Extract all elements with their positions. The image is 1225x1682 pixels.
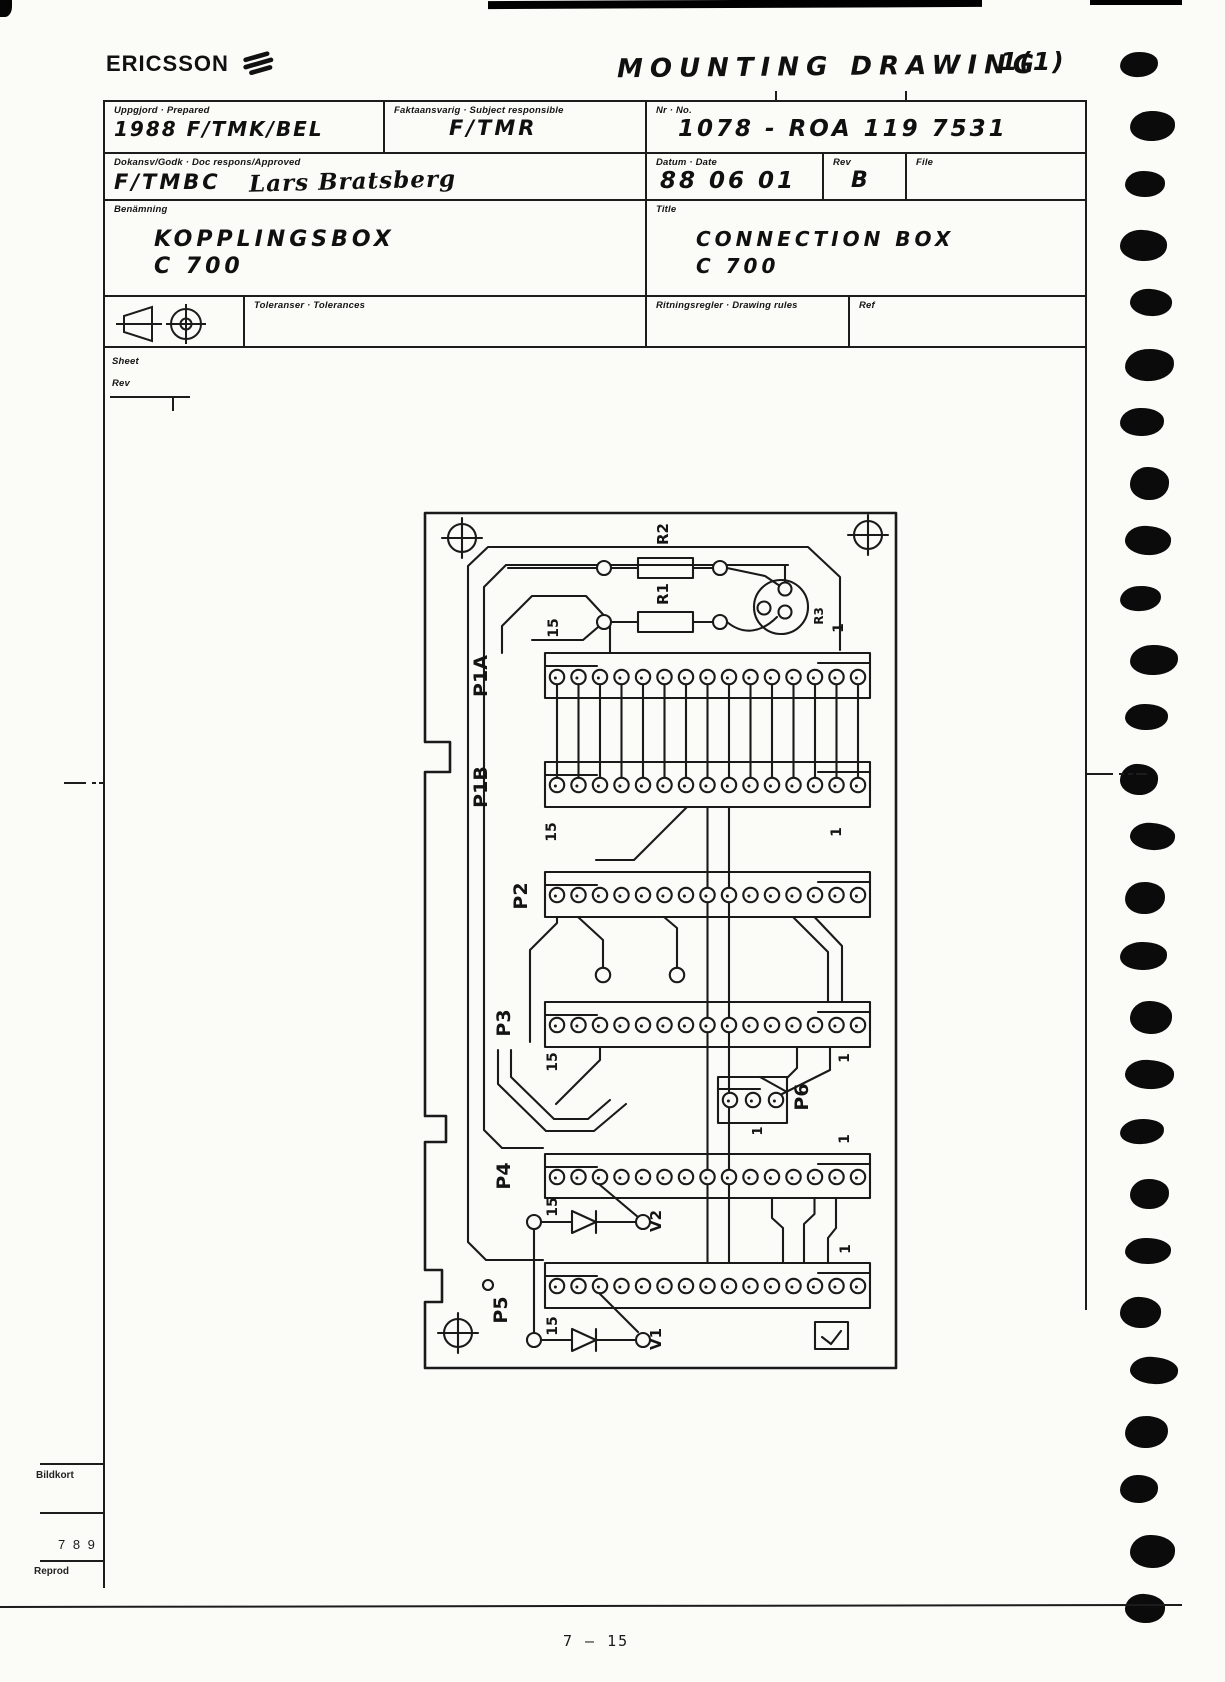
pin1-p5: 1 bbox=[838, 1244, 854, 1254]
pad-drill-mark bbox=[855, 677, 858, 680]
pad-p1b bbox=[571, 778, 585, 792]
pad-p3 bbox=[743, 1018, 757, 1032]
pad-drill-mark bbox=[704, 785, 707, 788]
pad-p1a bbox=[808, 670, 822, 684]
pad-drill-mark bbox=[855, 895, 858, 898]
pad-p3 bbox=[571, 1018, 585, 1032]
pad-drill-mark bbox=[812, 1025, 815, 1028]
pad-p2 bbox=[614, 888, 628, 902]
binder-hole-mark bbox=[1119, 51, 1159, 79]
pin15-p4: 15 bbox=[545, 1197, 561, 1216]
field-designation-line2: C 700 bbox=[154, 254, 645, 279]
rev-row-tick bbox=[172, 396, 174, 411]
footer-rule bbox=[0, 1604, 1182, 1608]
pad-p1a bbox=[743, 670, 757, 684]
pin15-p3: 15 bbox=[545, 1052, 561, 1071]
pad-drill-mark bbox=[640, 1286, 643, 1289]
pad-p4 bbox=[829, 1170, 843, 1184]
doc-no-tick-2 bbox=[905, 91, 907, 100]
resistor-r2 bbox=[597, 558, 727, 578]
component-r3 bbox=[754, 580, 808, 634]
binder-hole-mark bbox=[1130, 1000, 1173, 1034]
binder-hole-mark bbox=[1129, 821, 1176, 851]
pad-drill-mark bbox=[833, 895, 836, 898]
projection-symbol-icon bbox=[114, 300, 242, 346]
field-rev: Rev B bbox=[822, 152, 905, 199]
binder-hole-mark bbox=[1130, 1534, 1176, 1568]
pad-drill-mark bbox=[704, 895, 707, 898]
pad-drill-mark bbox=[683, 1025, 686, 1028]
pad-p2 bbox=[657, 888, 671, 902]
pad-p1a bbox=[700, 670, 714, 684]
pad-p3 bbox=[808, 1018, 822, 1032]
bildkort-box-top bbox=[40, 1463, 103, 1465]
field-projection-symbol bbox=[103, 295, 243, 348]
pad-p5 bbox=[614, 1279, 628, 1293]
pin1-p2: 1 bbox=[829, 827, 845, 837]
margin-number: 7 8 9 bbox=[58, 1537, 97, 1552]
pad-p6 bbox=[746, 1093, 760, 1107]
doc-no-tick-1 bbox=[775, 91, 777, 100]
pad-p6 bbox=[723, 1093, 737, 1107]
frame-right-border bbox=[1085, 100, 1087, 1310]
field-approved-signature: Lars Bratsberg bbox=[248, 165, 456, 197]
pad-p1b bbox=[765, 778, 779, 792]
pad-drill-mark bbox=[661, 677, 664, 680]
pad-drill-mark bbox=[704, 1177, 707, 1180]
pad-p1a bbox=[722, 670, 736, 684]
pad-p5 bbox=[679, 1279, 693, 1293]
pad-drill-mark bbox=[554, 785, 557, 788]
pad-p3 bbox=[722, 1018, 736, 1032]
label-p3: P3 bbox=[493, 1009, 515, 1036]
pad-drill-mark bbox=[640, 1177, 643, 1180]
rev-row-label: Rev bbox=[112, 378, 130, 389]
pad-p1b bbox=[722, 778, 736, 792]
pad-p1b bbox=[636, 778, 650, 792]
pad-p4 bbox=[614, 1170, 628, 1184]
pad-p5 bbox=[550, 1279, 564, 1293]
pin15-p2: 15 bbox=[544, 822, 560, 841]
pad-p2 bbox=[829, 888, 843, 902]
pad-drill-mark bbox=[661, 785, 664, 788]
pad-p4 bbox=[679, 1170, 693, 1184]
pin1-p4: 1 bbox=[837, 1134, 853, 1144]
scanned-drawing-page: ERICSSON MOUNTING DRAWING 1(1) Uppgjord … bbox=[0, 0, 1225, 1682]
pad-p5 bbox=[851, 1279, 865, 1293]
pad-drill-mark bbox=[640, 677, 643, 680]
field-date-label: Datum · Date bbox=[656, 157, 822, 168]
pad-p1a bbox=[636, 670, 650, 684]
binder-hole-mark bbox=[1124, 1415, 1169, 1449]
field-prepared-value: 1988 F/TMK/BEL bbox=[114, 117, 383, 141]
pad-p2 bbox=[743, 888, 757, 902]
trace-verticals bbox=[708, 807, 730, 1263]
label-v1: V1 bbox=[647, 1328, 665, 1350]
pad-p2 bbox=[851, 888, 865, 902]
pad-drill-mark bbox=[769, 895, 772, 898]
pin1-p3: 1 bbox=[837, 1053, 853, 1063]
pad-drill-mark bbox=[812, 895, 815, 898]
field-prepared-label: Uppgjord · Prepared bbox=[114, 105, 383, 116]
pad-drill-mark bbox=[597, 1177, 600, 1180]
pad-drill-mark bbox=[726, 1177, 729, 1180]
binder-hole-mark bbox=[1124, 525, 1171, 556]
pad-drill-mark bbox=[833, 1286, 836, 1289]
centerline-dot-left-2 bbox=[99, 782, 103, 784]
field-drawing-rules-label: Ritningsregler · Drawing rules bbox=[656, 300, 848, 311]
pad-drill-mark bbox=[750, 1100, 753, 1103]
trace-chevrons bbox=[498, 1050, 626, 1131]
field-doc-no-value: 1078 - ROA 119 7531 bbox=[678, 116, 1085, 142]
pad-drill-mark bbox=[812, 1286, 815, 1289]
centerline-dot-right-1 bbox=[1119, 773, 1124, 775]
pad-drill-mark bbox=[790, 1286, 793, 1289]
sheet-count: 1(1) bbox=[1000, 47, 1066, 76]
pad-drill-mark bbox=[683, 1286, 686, 1289]
binder-hole-mark bbox=[1119, 229, 1167, 262]
component-square bbox=[815, 1322, 848, 1349]
pad-drill-mark bbox=[554, 1177, 557, 1180]
pad-drill-mark bbox=[790, 895, 793, 898]
label-r1: R1 bbox=[654, 583, 672, 605]
field-doc-no: Nr · No. 1078 - ROA 119 7531 bbox=[645, 100, 1085, 152]
binder-hole-mark bbox=[1129, 288, 1173, 318]
pad-p4 bbox=[550, 1170, 564, 1184]
binder-hole-mark bbox=[1130, 467, 1170, 501]
field-rev-value: B bbox=[851, 168, 905, 193]
pad-drill-mark bbox=[747, 1177, 750, 1180]
field-title-line2: C 700 bbox=[696, 254, 1085, 278]
pad-drill-mark bbox=[640, 785, 643, 788]
binder-hole-mark bbox=[1129, 1178, 1169, 1209]
ericsson-bars-icon bbox=[239, 50, 279, 78]
pad-p1b bbox=[743, 778, 757, 792]
field-prepared: Uppgjord · Prepared 1988 F/TMK/BEL bbox=[103, 100, 383, 152]
mounting-hole-bottom-left bbox=[438, 1313, 478, 1353]
pad-p4 bbox=[657, 1170, 671, 1184]
pad-p1a bbox=[786, 670, 800, 684]
pad-drill-mark bbox=[833, 785, 836, 788]
binder-hole-mark bbox=[1120, 407, 1164, 436]
field-rev-label: Rev bbox=[833, 157, 905, 168]
pad-p4 bbox=[786, 1170, 800, 1184]
field-ref-label: Ref bbox=[859, 300, 1085, 311]
pad-drill-mark bbox=[833, 1177, 836, 1180]
centerline-mark-left bbox=[64, 782, 86, 784]
field-subject-value: F/TMR bbox=[449, 116, 645, 140]
pad-drill-mark bbox=[554, 1286, 557, 1289]
page-number: 7 – 15 bbox=[563, 1632, 629, 1650]
pad-p4 bbox=[851, 1170, 865, 1184]
field-designation-line1: KOPPLINGSBOX bbox=[154, 227, 645, 252]
pad-drill-mark bbox=[727, 1100, 730, 1103]
reprod-label: Reprod bbox=[34, 1566, 69, 1577]
pad-drill-mark bbox=[833, 1025, 836, 1028]
pad-p2 bbox=[550, 888, 564, 902]
binder-hole-mark bbox=[1119, 1297, 1161, 1329]
pad-p1a bbox=[829, 670, 843, 684]
pad-drill-mark bbox=[726, 1025, 729, 1028]
scan-artifact-top-left bbox=[0, 0, 12, 17]
reprod-box-top bbox=[40, 1560, 103, 1562]
label-p1b: P1B bbox=[470, 766, 492, 808]
pin15-p5: 15 bbox=[545, 1316, 561, 1335]
binder-hole-mark bbox=[1120, 1475, 1158, 1504]
pad-drill-mark bbox=[554, 677, 557, 680]
pad-drill-mark bbox=[769, 785, 772, 788]
pad-drill-mark bbox=[790, 677, 793, 680]
binder-hole-mark bbox=[1124, 347, 1175, 382]
pad-p4 bbox=[808, 1170, 822, 1184]
pad-p3 bbox=[829, 1018, 843, 1032]
binder-hole-mark bbox=[1125, 171, 1165, 197]
centerline-dot-right-2 bbox=[1128, 773, 1133, 775]
centerline-mark-right bbox=[1087, 773, 1113, 775]
field-tolerances: Toleranser · Tolerances bbox=[243, 295, 645, 348]
field-date-value: 88 06 01 bbox=[660, 168, 822, 194]
label-p6: P6 bbox=[791, 1083, 813, 1110]
pad-drill-mark bbox=[597, 1286, 600, 1289]
field-approved: Dokansv/Godk · Doc respons/Approved F/TM… bbox=[103, 152, 645, 199]
mounting-hole-top-left bbox=[442, 518, 482, 558]
pin15-p1a: 15 bbox=[546, 618, 562, 637]
pad-drill-mark bbox=[618, 1286, 621, 1289]
label-p5: P5 bbox=[490, 1296, 512, 1323]
label-r3: R3 bbox=[812, 607, 826, 625]
pad-p3 bbox=[765, 1018, 779, 1032]
scan-artifact-top-strip bbox=[488, 0, 982, 9]
pad-p1b bbox=[550, 778, 564, 792]
field-designation-label: Benämning bbox=[114, 204, 645, 215]
pad-p2 bbox=[593, 888, 607, 902]
pad-drill-mark bbox=[790, 1025, 793, 1028]
pad-p1a bbox=[571, 670, 585, 684]
pad-p1b bbox=[786, 778, 800, 792]
pad-p1a bbox=[851, 670, 865, 684]
pad-p3 bbox=[786, 1018, 800, 1032]
pad-p2 bbox=[786, 888, 800, 902]
pad-drill-mark bbox=[812, 677, 815, 680]
field-subject-responsible: Faktaansvarig · Subject responsible F/TM… bbox=[383, 100, 645, 152]
pad-drill-mark bbox=[855, 785, 858, 788]
pad-p1b bbox=[700, 778, 714, 792]
title-block-bottom-line bbox=[103, 346, 1085, 348]
pad-drill-mark bbox=[747, 1286, 750, 1289]
pad-p4 bbox=[765, 1170, 779, 1184]
pad-p2 bbox=[808, 888, 822, 902]
pad-drill-mark bbox=[726, 677, 729, 680]
pad-p1a bbox=[679, 670, 693, 684]
field-date: Datum · Date 88 06 01 bbox=[645, 152, 822, 199]
pad-p2 bbox=[700, 888, 714, 902]
pad-p3 bbox=[657, 1018, 671, 1032]
pad-p4 bbox=[571, 1170, 585, 1184]
pad-p2 bbox=[571, 888, 585, 902]
field-title: Title CONNECTION BOX C 700 bbox=[645, 199, 1085, 295]
rev-row-line bbox=[110, 396, 190, 398]
pad-drill-mark bbox=[618, 677, 621, 680]
pad-p1b bbox=[679, 778, 693, 792]
pad-p3 bbox=[614, 1018, 628, 1032]
pad-drill-mark bbox=[773, 1100, 776, 1103]
pad-drill-mark bbox=[575, 1177, 578, 1180]
pad-p5 bbox=[636, 1279, 650, 1293]
pad-drill-mark bbox=[640, 895, 643, 898]
pad-drill-mark bbox=[726, 1286, 729, 1289]
label-r2: R2 bbox=[654, 523, 672, 545]
binder-hole-mark bbox=[1120, 941, 1167, 970]
sheet-label: Sheet bbox=[112, 356, 139, 367]
pad-p2 bbox=[722, 888, 736, 902]
pad-drill-mark bbox=[704, 1286, 707, 1289]
pad-p4 bbox=[743, 1170, 757, 1184]
pad-p1a bbox=[614, 670, 628, 684]
pad-drill-mark bbox=[855, 1286, 858, 1289]
board-drawing: P1A P1B P2 P3 P4 P5 P6 R2 R1 R3 V2 V1 15… bbox=[380, 470, 920, 1400]
pad-p1b bbox=[851, 778, 865, 792]
pad-drill-mark bbox=[554, 895, 557, 898]
pad-drill-mark bbox=[597, 1025, 600, 1028]
pad-p4 bbox=[636, 1170, 650, 1184]
pad-p1b bbox=[614, 778, 628, 792]
pad-p5 bbox=[743, 1279, 757, 1293]
pad-drill-mark bbox=[554, 1025, 557, 1028]
field-approved-org: F/TMBC bbox=[114, 170, 221, 194]
pad-drill-mark bbox=[661, 1286, 664, 1289]
field-subject-label: Faktaansvarig · Subject responsible bbox=[394, 105, 645, 116]
binder-hole-mark bbox=[1129, 644, 1178, 676]
pad-p1b bbox=[593, 778, 607, 792]
pad-drill-mark bbox=[575, 895, 578, 898]
pad-p5 bbox=[786, 1279, 800, 1293]
binder-hole-mark bbox=[1129, 1355, 1179, 1385]
pad-p5 bbox=[829, 1279, 843, 1293]
binder-hole-mark bbox=[1119, 1118, 1165, 1146]
pin1-p1a: 1 bbox=[831, 623, 847, 633]
pad-drill-mark bbox=[597, 677, 600, 680]
pad-p3 bbox=[636, 1018, 650, 1032]
pad-p1a bbox=[593, 670, 607, 684]
binder-hole-mark bbox=[1125, 704, 1168, 730]
binder-hole-mark bbox=[1124, 1593, 1165, 1624]
label-p4: P4 bbox=[493, 1162, 515, 1189]
field-title-line1: CONNECTION BOX bbox=[696, 227, 1085, 251]
pad-drill-mark bbox=[833, 677, 836, 680]
pad-drill-mark bbox=[683, 785, 686, 788]
pad-drill-mark bbox=[812, 785, 815, 788]
pad-p5 bbox=[571, 1279, 585, 1293]
bildkort-box-bottom bbox=[40, 1512, 103, 1514]
pad-drill-mark bbox=[575, 1025, 578, 1028]
pad-p3 bbox=[700, 1018, 714, 1032]
field-file-label: File bbox=[916, 157, 1085, 168]
centerline-mark-right-2 bbox=[1136, 773, 1147, 775]
field-drawing-rules: Ritningsregler · Drawing rules bbox=[645, 295, 848, 348]
brand-logo: ERICSSON bbox=[106, 50, 279, 78]
pad-p2 bbox=[765, 888, 779, 902]
pad-p1a bbox=[550, 670, 564, 684]
pad-p4 bbox=[722, 1170, 736, 1184]
label-p2: P2 bbox=[510, 882, 532, 909]
field-designation: Benämning KOPPLINGSBOX C 700 bbox=[103, 199, 645, 295]
field-file: File bbox=[905, 152, 1085, 199]
pad-drill-mark bbox=[769, 1025, 772, 1028]
centerline-dot-left-1 bbox=[92, 782, 96, 784]
brand-logo-text: ERICSSON bbox=[106, 51, 229, 77]
pad-drill-mark bbox=[747, 895, 750, 898]
pad-drill-mark bbox=[661, 1177, 664, 1180]
pad-p3 bbox=[550, 1018, 564, 1032]
pad-drill-mark bbox=[683, 677, 686, 680]
scan-artifact-top-right bbox=[1090, 0, 1182, 5]
pad-p5 bbox=[722, 1279, 736, 1293]
pad-p5 bbox=[593, 1279, 607, 1293]
binder-hole-mark bbox=[1124, 881, 1166, 915]
binder-hole-mark bbox=[1129, 111, 1175, 143]
pad-drill-mark bbox=[790, 1177, 793, 1180]
pad-drill-mark bbox=[597, 785, 600, 788]
pad-drill-mark bbox=[812, 1177, 815, 1180]
pad-drill-mark bbox=[704, 1025, 707, 1028]
pad-drill-mark bbox=[575, 1286, 578, 1289]
binder-hole-mark bbox=[1119, 763, 1158, 795]
pad-p5 bbox=[808, 1279, 822, 1293]
pad-p2 bbox=[636, 888, 650, 902]
pad-p2 bbox=[679, 888, 693, 902]
pad-drill-mark bbox=[683, 1177, 686, 1180]
pad-drill-mark bbox=[726, 895, 729, 898]
pad-drill-mark bbox=[855, 1177, 858, 1180]
binder-hole-mark bbox=[1119, 584, 1162, 612]
pad-drill-mark bbox=[747, 1025, 750, 1028]
pad-drill-mark bbox=[618, 785, 621, 788]
pad-p1b bbox=[829, 778, 843, 792]
pad-drill-mark bbox=[704, 677, 707, 680]
pad-drill-mark bbox=[597, 895, 600, 898]
pin1-p6: 1 bbox=[751, 1126, 766, 1135]
pad-p1b bbox=[657, 778, 671, 792]
pad-drill-mark bbox=[575, 785, 578, 788]
pad-drill-mark bbox=[855, 1025, 858, 1028]
field-ref: Ref bbox=[848, 295, 1085, 348]
drawing-type-heading: MOUNTING DRAWING bbox=[617, 50, 1041, 84]
pad-drill-mark bbox=[661, 1025, 664, 1028]
resistor-r1 bbox=[597, 612, 727, 632]
pad-p4 bbox=[593, 1170, 607, 1184]
pad-p3 bbox=[593, 1018, 607, 1032]
field-title-label: Title bbox=[656, 204, 1085, 215]
pad-drill-mark bbox=[769, 677, 772, 680]
pad-drill-mark bbox=[640, 1025, 643, 1028]
pad-p3 bbox=[851, 1018, 865, 1032]
field-doc-no-label: Nr · No. bbox=[656, 105, 1085, 116]
pad-drill-mark bbox=[618, 895, 621, 898]
pad-drill-mark bbox=[683, 895, 686, 898]
pad-p5 bbox=[765, 1279, 779, 1293]
binder-hole-mark bbox=[1125, 1238, 1171, 1264]
pad-p4 bbox=[700, 1170, 714, 1184]
pad-p3 bbox=[679, 1018, 693, 1032]
pad-drill-mark bbox=[769, 1177, 772, 1180]
pad-drill-mark bbox=[618, 1177, 621, 1180]
pad-drill-mark bbox=[790, 785, 793, 788]
mounting-hole-top-right bbox=[848, 515, 888, 555]
pad-drill-mark bbox=[747, 785, 750, 788]
pad-p5 bbox=[700, 1279, 714, 1293]
label-v2: V2 bbox=[647, 1210, 665, 1232]
field-tolerances-label: Toleranser · Tolerances bbox=[254, 300, 645, 311]
